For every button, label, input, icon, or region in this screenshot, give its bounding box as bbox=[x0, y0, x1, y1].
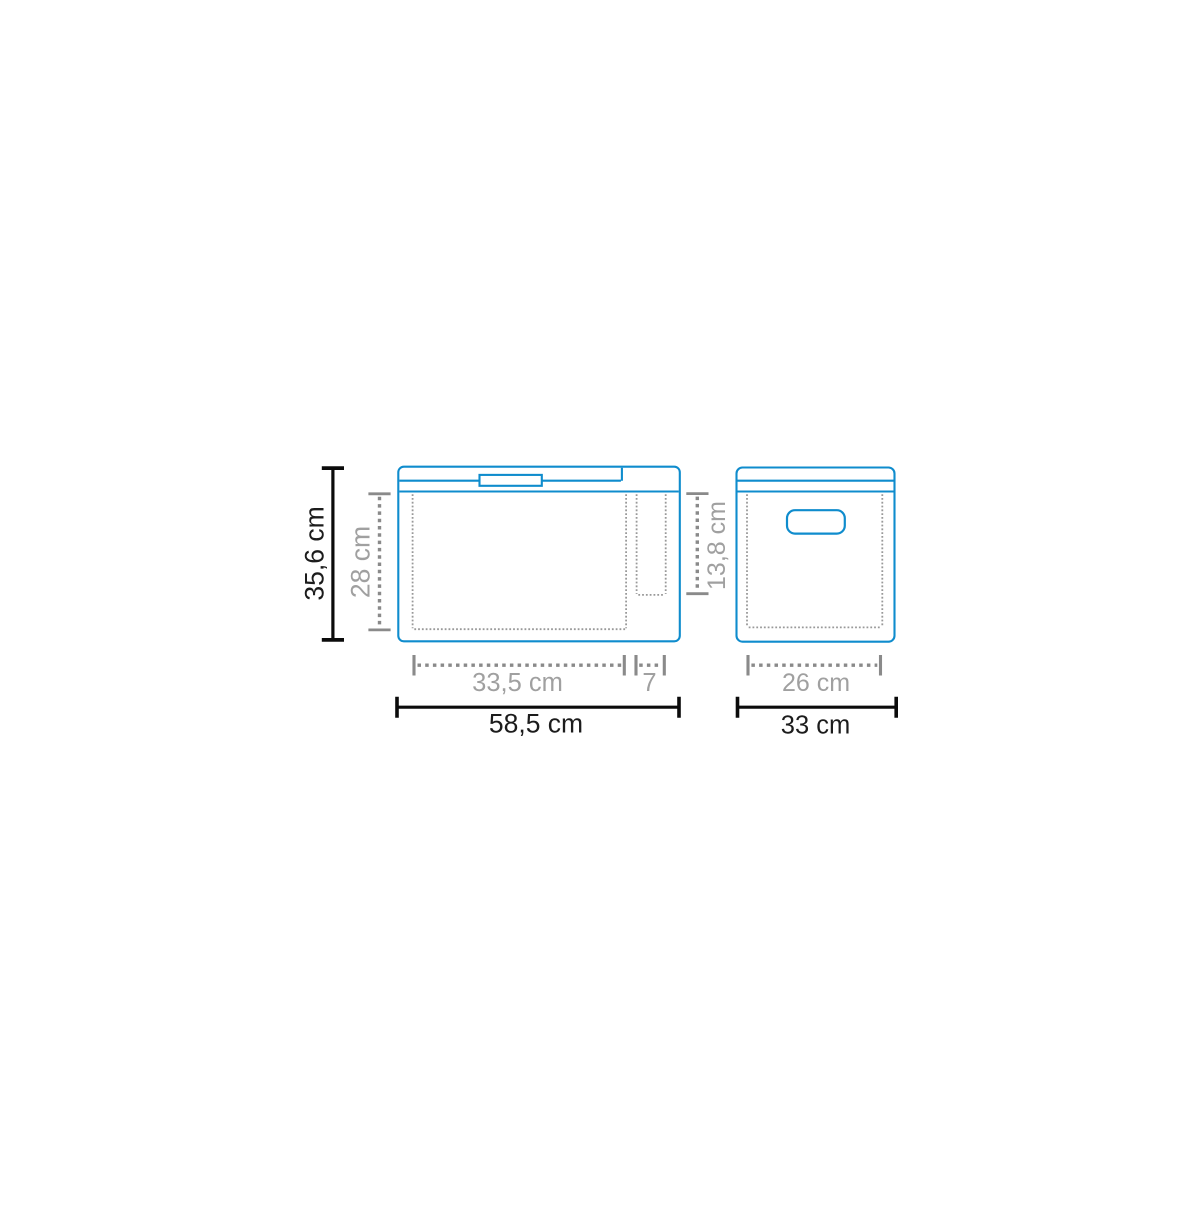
svg-text:58,5 cm: 58,5 cm bbox=[489, 709, 583, 739]
svg-text:33,5 cm: 33,5 cm bbox=[472, 669, 563, 697]
svg-text:13,8 cm: 13,8 cm bbox=[703, 501, 731, 590]
svg-text:28 cm: 28 cm bbox=[346, 526, 376, 598]
svg-text:35,6 cm: 35,6 cm bbox=[300, 506, 330, 600]
svg-text:26 cm: 26 cm bbox=[782, 669, 850, 697]
svg-text:7: 7 bbox=[642, 669, 656, 697]
svg-text:33 cm: 33 cm bbox=[781, 711, 850, 739]
